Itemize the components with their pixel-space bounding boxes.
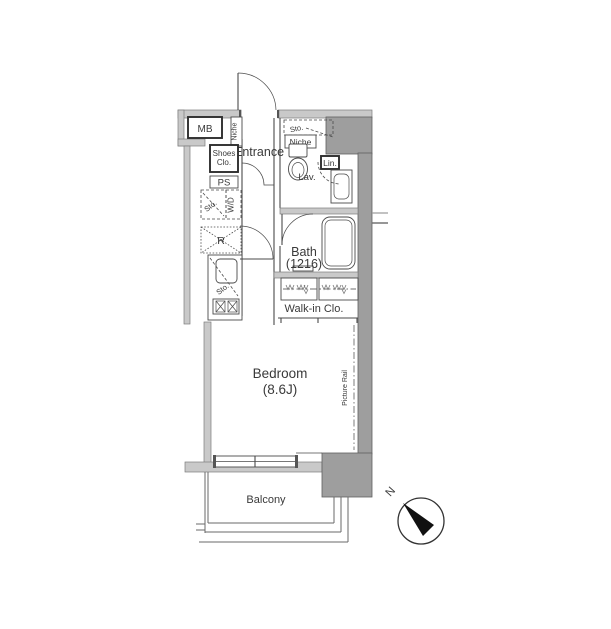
bath-door-swing — [282, 214, 313, 245]
wall-left-lower — [204, 322, 211, 468]
linen-label: Lin. — [323, 158, 337, 168]
entrance-door — [238, 73, 276, 110]
walkin-label: Walk-in Clo. — [285, 303, 344, 315]
entrance-niche-label: Niche — [232, 122, 239, 140]
floor-plan-page: MB Niche Entrance Shoes Clo. PS Sto. W/D… — [0, 0, 611, 629]
compass-north-label: N — [384, 485, 398, 499]
meter-box: MB — [188, 117, 222, 138]
wall-right — [358, 153, 372, 454]
picture-rail-label: Picture Rail — [342, 370, 349, 406]
wall-mb-bottom — [178, 139, 205, 146]
shoes-closet: Shoes Clo. — [210, 145, 238, 172]
balcony-label: Balcony — [246, 494, 286, 506]
wall-left-upper — [184, 146, 190, 324]
bath-size-label: (1216) — [286, 257, 322, 271]
walkin-closet: Walk-in Clo. — [278, 278, 358, 323]
hall-door — [240, 226, 273, 259]
entrance-step — [242, 163, 274, 185]
shaft-bottom-right — [322, 453, 372, 497]
pipe-space-label: PS — [218, 178, 231, 189]
wall-toilet-bath — [280, 208, 358, 214]
toilet-storage-label: Sto. — [289, 123, 304, 135]
pipe-space: PS — [210, 176, 238, 189]
laundry-storage: Sto. W/D — [201, 190, 241, 219]
bathtub-icon — [322, 217, 355, 269]
vanity-sink-icon — [331, 170, 352, 203]
bedroom-size-label: (8.6J) — [263, 382, 298, 397]
shoes-closet-label-1: Shoes — [213, 149, 236, 158]
shoes-closet-label-2: Clo. — [217, 158, 231, 167]
entrance-label: Entrance — [234, 145, 284, 159]
door-jamb-right — [277, 110, 279, 118]
bedroom-window — [213, 455, 298, 468]
lavatory-label: Lav. — [298, 172, 315, 183]
floor-plan: MB Niche Entrance Shoes Clo. PS Sto. W/D… — [0, 0, 611, 629]
bathroom: Bath (1216) — [282, 214, 355, 271]
wall-bath-walkin — [274, 272, 358, 278]
refrigerator-label: R — [217, 235, 225, 247]
washer-dryer-label: W/D — [227, 197, 236, 213]
stove-icon — [213, 299, 239, 314]
closet-opening-track — [278, 318, 358, 323]
mb-label: MB — [198, 124, 213, 135]
compass: N — [384, 485, 444, 544]
entrance-niche: Niche — [231, 117, 242, 146]
linen-closet: Lin. — [321, 156, 339, 169]
refrigerator-space: R — [201, 227, 241, 253]
bedroom-label: Bedroom — [253, 366, 308, 381]
bedroom: Bedroom (8.6J) Picture Rail — [213, 325, 354, 468]
right-wall-bracket — [372, 213, 388, 223]
kitchen-unit: Sto. — [208, 255, 242, 320]
laundry-storage-label: Sto. — [202, 198, 218, 213]
